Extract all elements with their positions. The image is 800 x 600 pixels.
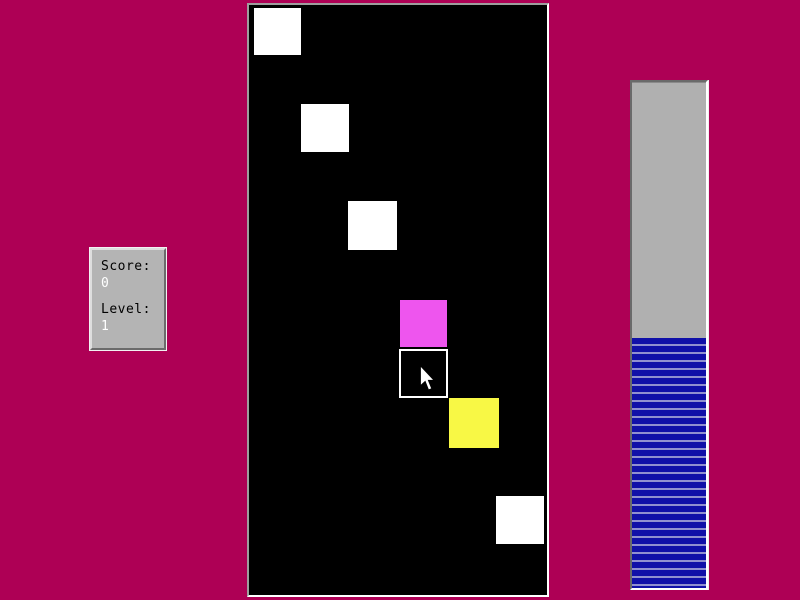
score-label: Score: <box>101 258 164 275</box>
block[interactable] <box>301 104 349 152</box>
score-value: 0 <box>101 275 164 292</box>
level-value: 1 <box>101 318 164 335</box>
block[interactable] <box>496 496 544 544</box>
block[interactable] <box>449 398 499 448</box>
block[interactable] <box>254 8 301 55</box>
progress-fill <box>632 338 706 588</box>
block[interactable] <box>400 300 447 347</box>
cursor-cell[interactable] <box>399 349 448 398</box>
block[interactable] <box>348 201 397 250</box>
progress-bar <box>630 80 708 590</box>
level-label: Level: <box>101 301 164 318</box>
game-field[interactable] <box>247 3 549 597</box>
score-panel: Score: 0 Level: 1 <box>90 248 166 350</box>
game-window: Score: 0 Level: 1 <box>0 0 800 600</box>
